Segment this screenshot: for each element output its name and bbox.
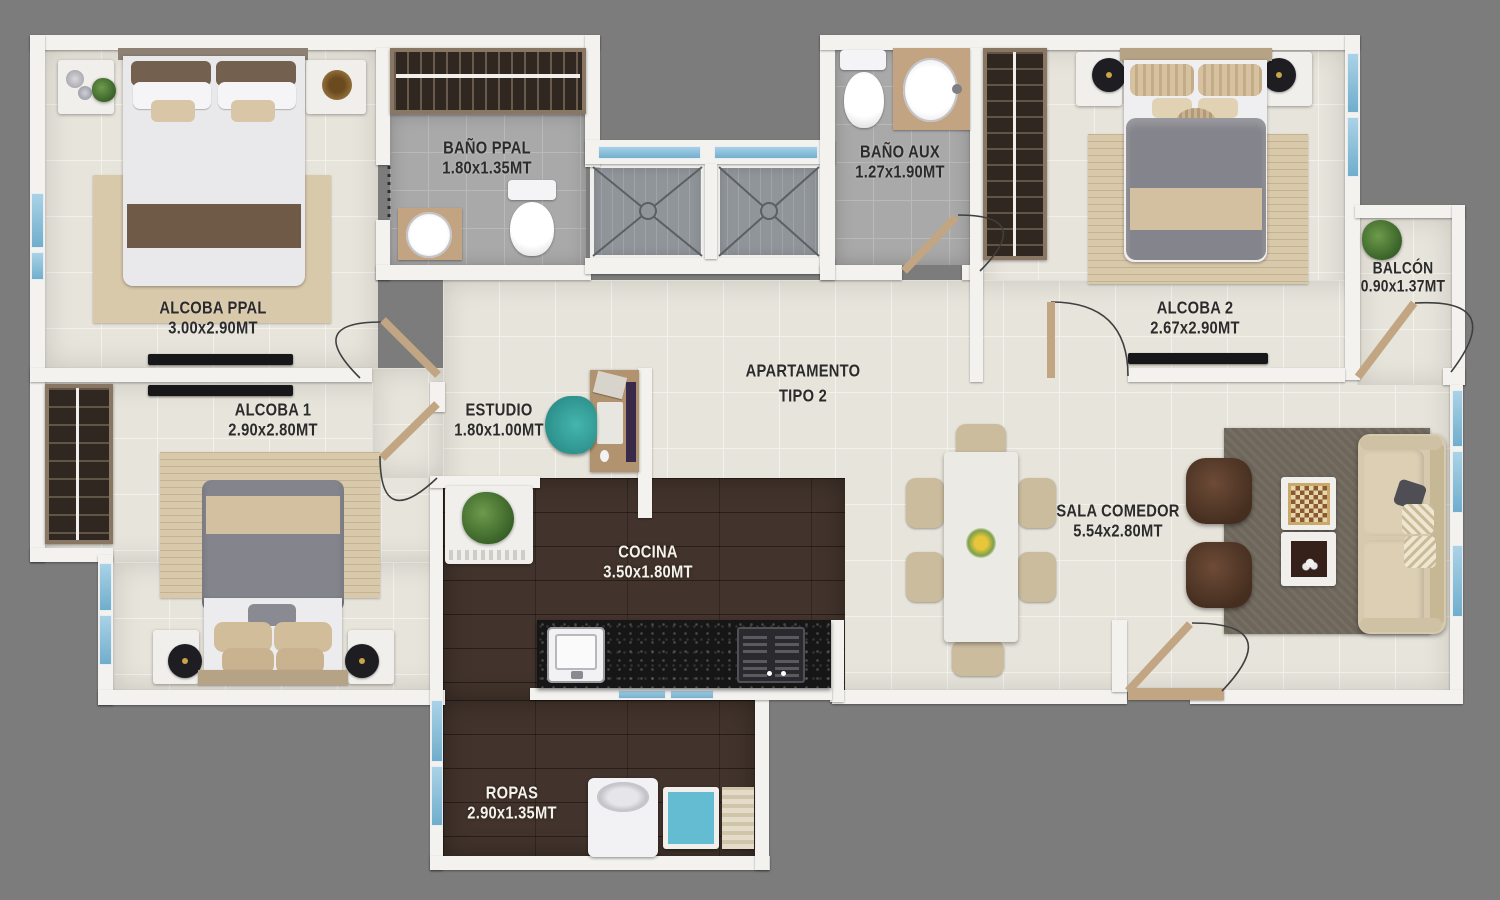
closet-alcoba-2 [983, 48, 1047, 260]
washing-machine [588, 778, 658, 857]
room-label-alcoba-2: ALCOBA 2 2.67x2.90MT [1150, 298, 1239, 337]
room-dims: 1.80x1.00MT [454, 420, 543, 440]
toilet-bano-aux [840, 50, 890, 130]
sink-bano-ppal [406, 212, 452, 258]
room-dims: 3.50x1.80MT [603, 562, 692, 582]
pillow-striped-left [1130, 64, 1194, 96]
wall-notch-right [820, 35, 835, 280]
bed-master [123, 56, 305, 286]
toilet-tank [508, 180, 556, 200]
room-name: ALCOBA 1 [228, 400, 317, 420]
closet-slider [76, 388, 79, 540]
room-dims: 2.67x2.90MT [1150, 318, 1239, 338]
wall-sala-bottom-right [1190, 690, 1463, 704]
plant-balcon [1362, 220, 1402, 260]
toilet-bowl [510, 202, 554, 256]
plant-kitchen [462, 492, 514, 544]
mouse [600, 450, 609, 462]
dining-chair-right-1 [1018, 478, 1056, 528]
room-dims: 1.27x1.90MT [855, 162, 944, 182]
wall-banos-south [376, 265, 591, 280]
blanket-band [1130, 188, 1262, 230]
closet-clothes [49, 388, 109, 540]
floor-plan: ALCOBA PPAL 3.00x2.90MT BAÑO PPAL 1.80x1… [0, 0, 1500, 900]
throw-pillow-print-2 [1404, 536, 1436, 568]
lamp-knob [359, 658, 365, 664]
decor-vases [66, 70, 84, 88]
gold-bowl [322, 70, 352, 100]
burner [743, 633, 767, 653]
decor-vase-2 [78, 86, 92, 100]
wall-balcon-top [1355, 205, 1465, 218]
window-ropas-1 [431, 700, 443, 762]
bed-alcoba-1 [198, 478, 348, 686]
wall-alcoba1-bottom [98, 690, 445, 705]
wall-divider-alcobas [30, 368, 372, 382]
wall-bano-ppal-west-a [376, 48, 390, 165]
headboard [198, 670, 348, 685]
window-alcoba1-2 [99, 615, 112, 665]
window-shower-ppal [598, 146, 701, 159]
pouf-1 [1186, 458, 1252, 524]
wall-corner-block [1443, 368, 1465, 385]
tv-alcoba-1 [148, 385, 293, 396]
room-label-cocina: COCINA 3.50x1.80MT [603, 542, 692, 581]
room-name: ALCOBA 2 [1150, 298, 1239, 318]
coffee-table-tray [1281, 532, 1336, 586]
plant-nightstand [92, 78, 116, 102]
cushion-right [231, 100, 275, 122]
room-name: ALCOBA PPAL [159, 298, 266, 318]
plan-title-line2: TIPO 2 [746, 384, 861, 409]
tv-alcoba-2 [1128, 353, 1268, 364]
lamp-alc1-right [345, 644, 379, 678]
wall-estudio-east [638, 368, 652, 518]
throw-pillow-print-1 [1402, 504, 1434, 534]
room-label-ropas: ROPAS 2.90x1.35MT [467, 783, 556, 822]
room-dims: 0.90x1.37MT [1361, 278, 1445, 296]
wall-entry-stub [1112, 620, 1127, 692]
sofa-back [1430, 442, 1444, 626]
window-alcoba2-1 [1347, 53, 1359, 113]
laundry-sink [663, 787, 719, 849]
room-name: BAÑO AUX [855, 142, 944, 162]
wall-alcoba2-west [970, 48, 983, 382]
burner [743, 657, 767, 677]
coffee-table-chess [1281, 477, 1336, 530]
closet-bano-ppal [390, 48, 586, 114]
stove-knob [767, 671, 772, 676]
wardrobe-alcoba-1 [45, 384, 113, 544]
lamp-alc2-left [1092, 58, 1126, 92]
lamp-knob [1276, 72, 1282, 78]
window-kitchen-2 [670, 690, 714, 699]
entry-threshold [1128, 688, 1224, 700]
burner [775, 633, 799, 653]
room-name: SALA COMEDOR [1056, 501, 1179, 521]
sink-bano-aux [903, 58, 958, 122]
wall-alcoba2-south [1128, 368, 1345, 382]
bed-alcoba-2 [1122, 48, 1270, 266]
room-name: COCINA [603, 542, 692, 562]
window-sala-3 [1452, 545, 1463, 617]
cushion-left [151, 100, 195, 122]
plan-title: APARTAMENTO TIPO 2 [746, 359, 861, 410]
window-ropas-2 [431, 766, 443, 826]
table-centerpiece [966, 528, 996, 558]
room-dims: 2.90x2.80MT [228, 420, 317, 440]
stove [737, 627, 805, 683]
window-shower-aux [714, 146, 818, 159]
room-label-bano-ppal: BAÑO PPAL 1.80x1.35MT [442, 138, 531, 177]
wall-ropas-bottom [430, 856, 770, 870]
wall-kitchen-east [830, 620, 844, 702]
wall-showers-south [585, 258, 835, 274]
monitor [626, 382, 636, 462]
room-name: BALCÓN [1361, 260, 1445, 278]
room-dims: 5.54x2.80MT [1056, 521, 1179, 541]
room-dims: 2.90x1.35MT [467, 803, 556, 823]
cabinet-grill [449, 550, 529, 560]
room-label-alcoba-1: ALCOBA 1 2.90x2.80MT [228, 400, 317, 439]
wall-sala-bottom-left [832, 690, 1127, 704]
window-alcoba-ppal-2 [31, 252, 44, 280]
lamp-knob [1106, 72, 1112, 78]
sink-basin [555, 634, 597, 670]
room-dims: 1.80x1.35MT [442, 158, 531, 178]
sofa-armrest-bottom [1360, 618, 1442, 632]
lamp-knob [182, 658, 188, 664]
room-label-balcon: BALCÓN 0.90x1.37MT [1361, 260, 1445, 297]
blanket-fold [127, 204, 301, 248]
stove-knob [781, 671, 786, 676]
desk-chair-estudio [545, 396, 597, 454]
lamp-alc1-left [168, 644, 202, 678]
closet-slider [1013, 52, 1016, 256]
closet-rail [396, 74, 580, 78]
wall-left-upper [30, 35, 45, 562]
wall-ropas-east [755, 700, 769, 870]
washer-lid [597, 782, 649, 812]
sink-faucet [571, 671, 583, 679]
pouf-2 [1186, 542, 1252, 608]
decor-flowers [1301, 554, 1319, 572]
sofa-armrest-top [1360, 436, 1442, 450]
laundry-basin [668, 792, 714, 844]
door-leaf-alcoba-ppal [383, 320, 438, 375]
window-sala-1 [1452, 390, 1463, 447]
faucet-aux [952, 84, 962, 94]
keyboard [597, 402, 623, 444]
dining-chair-right-2 [1018, 552, 1056, 602]
dining-chair-bottom [952, 640, 1004, 676]
island-sink [547, 627, 605, 683]
room-label-sala-comedor: SALA COMEDOR 5.54x2.80MT [1056, 501, 1179, 540]
chessboard [1291, 486, 1327, 522]
burner [775, 657, 799, 677]
plan-title-line1: APARTAMENTO [746, 359, 861, 384]
toilet-tank [840, 50, 886, 70]
room-name: BAÑO PPAL [442, 138, 531, 158]
room-label-bano-aux: BAÑO AUX 1.27x1.90MT [855, 142, 944, 181]
wall-alcoba1-east [430, 382, 445, 412]
window-alcoba2-2 [1347, 117, 1359, 177]
sofa [1358, 434, 1446, 634]
wall-balcon-east [1452, 205, 1465, 385]
closet-clothes [394, 52, 582, 110]
toilet-bano-ppal [506, 180, 558, 258]
room-name: ROPAS [467, 783, 556, 803]
wall-shower-divider [705, 164, 717, 259]
window-sala-2 [1452, 451, 1463, 513]
room-dims: 3.00x2.90MT [159, 318, 266, 338]
washboard [722, 787, 754, 849]
dining-chair-left-2 [906, 552, 944, 602]
room-name: ESTUDIO [454, 400, 543, 420]
room-label-alcoba-ppal: ALCOBA PPAL 3.00x2.90MT [159, 298, 266, 337]
blanket-band [206, 496, 340, 534]
window-alcoba-ppal-1 [31, 193, 44, 248]
dining-chair-left-1 [906, 478, 944, 528]
shower-stall-ppal [590, 164, 705, 259]
toilet-bowl [844, 72, 884, 128]
window-kitchen-1 [618, 690, 666, 699]
tv-alcoba-ppal [148, 354, 293, 365]
room-label-estudio: ESTUDIO 1.80x1.00MT [454, 400, 543, 439]
shower-stall-aux [716, 164, 822, 259]
pillow-striped-right [1198, 64, 1262, 96]
window-alcoba1-1 [99, 563, 112, 611]
